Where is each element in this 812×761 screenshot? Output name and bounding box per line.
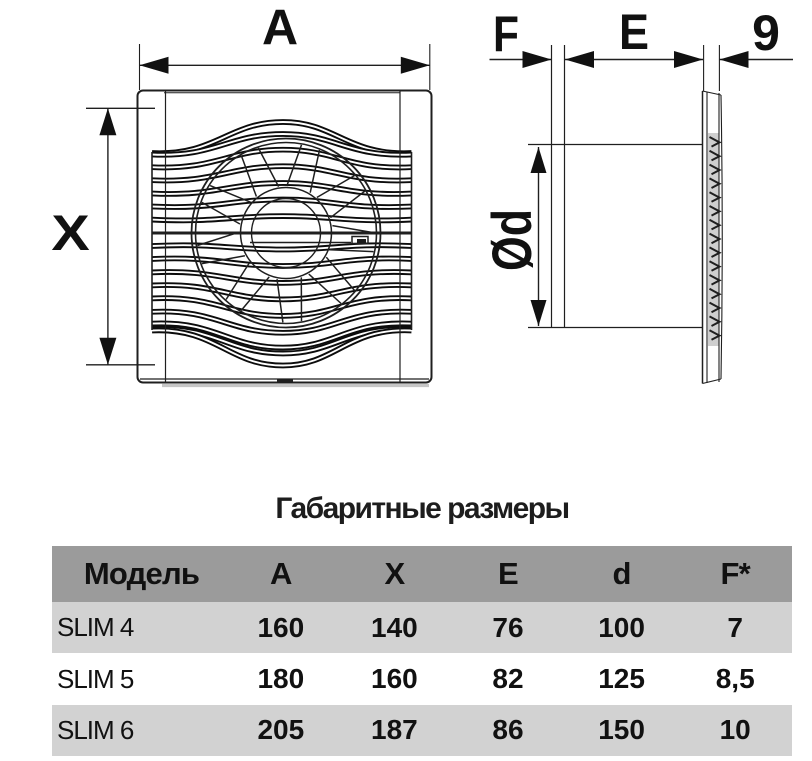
svg-text:F: F: [493, 6, 519, 62]
svg-text:Ød: Ød: [480, 209, 543, 271]
svg-text:9: 9: [752, 5, 780, 61]
svg-text:E: E: [619, 5, 649, 61]
svg-text:X: X: [51, 205, 89, 261]
svg-text:A: A: [262, 0, 298, 56]
